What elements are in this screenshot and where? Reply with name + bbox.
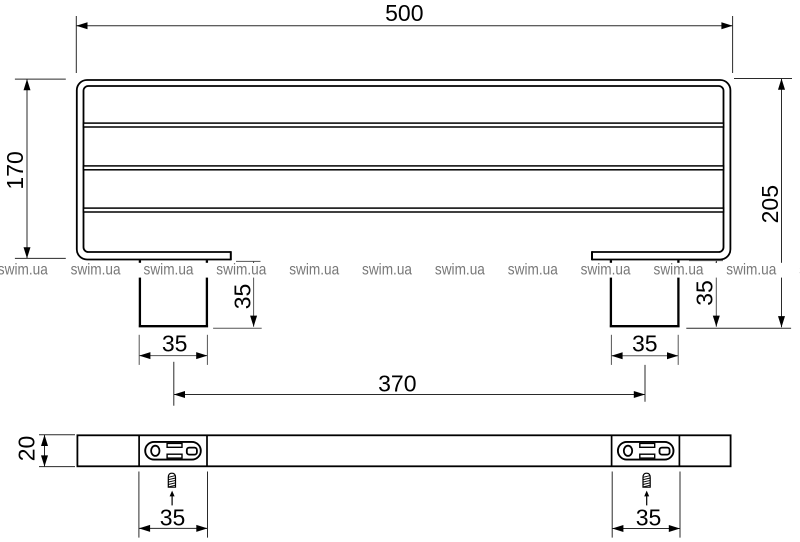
svg-text:205: 205 [757, 185, 783, 223]
svg-text:35: 35 [636, 505, 662, 531]
svg-text:35: 35 [162, 331, 188, 357]
svg-text:500: 500 [385, 0, 423, 26]
svg-text:swim.ua: swim.ua [508, 261, 558, 278]
svg-text:swim.ua: swim.ua [216, 261, 266, 278]
svg-text:swim.ua: swim.ua [362, 261, 412, 278]
svg-text:swim.ua: swim.ua [581, 261, 631, 278]
svg-text:swim.ua: swim.ua [435, 261, 485, 278]
svg-text:35: 35 [230, 284, 256, 310]
svg-text:170: 170 [2, 151, 28, 189]
svg-text:370: 370 [378, 370, 416, 396]
svg-text:35: 35 [691, 280, 717, 306]
svg-text:swim.ua: swim.ua [654, 261, 704, 278]
svg-text:swim.ua: swim.ua [144, 261, 194, 278]
svg-text:swim.ua: swim.ua [289, 261, 339, 278]
svg-text:35: 35 [160, 505, 186, 531]
svg-text:35: 35 [632, 331, 658, 357]
svg-text:20: 20 [14, 436, 40, 462]
svg-text:swim.ua: swim.ua [71, 261, 121, 278]
svg-text:swim.ua: swim.ua [0, 261, 48, 278]
svg-text:swim.ua: swim.ua [726, 261, 776, 278]
